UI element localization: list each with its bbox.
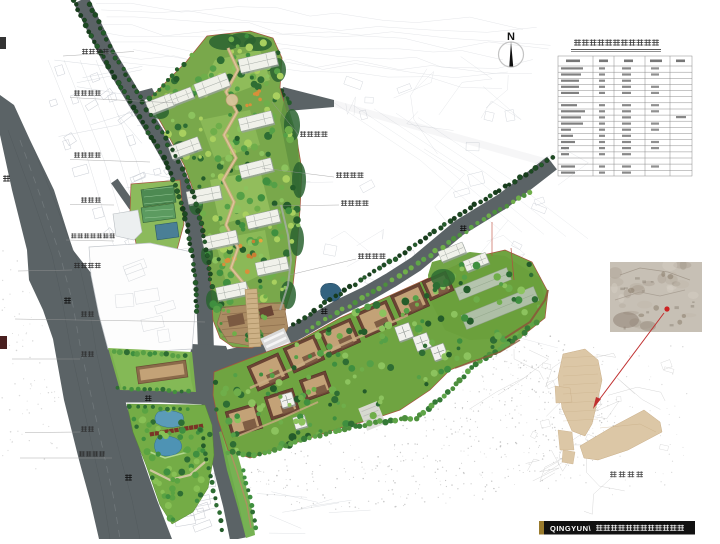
svg-text:QINGYUN\: QINGYUN\ — [550, 524, 592, 533]
svg-text:N: N — [507, 31, 515, 43]
